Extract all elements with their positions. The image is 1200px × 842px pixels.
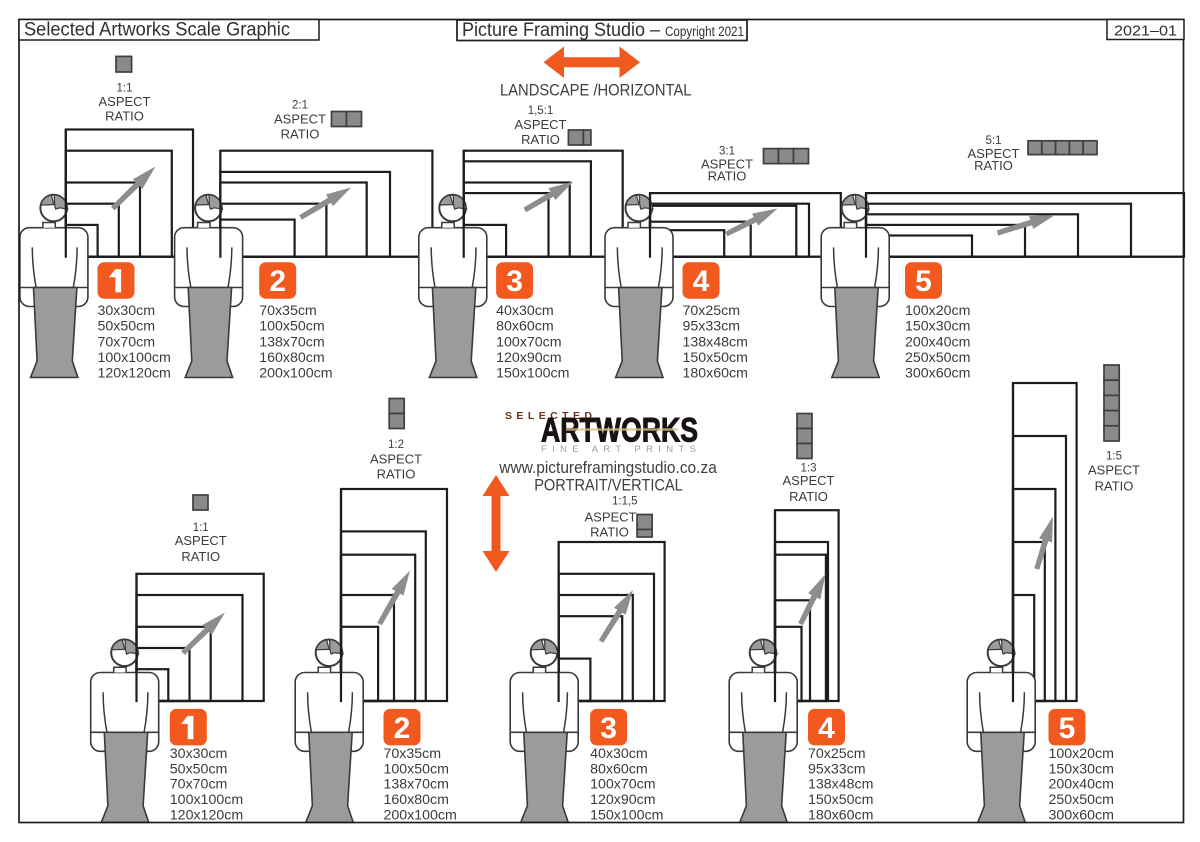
svg-text:70x35cm: 70x35cm bbox=[384, 746, 442, 762]
svg-text:5: 5 bbox=[915, 265, 932, 298]
svg-text:70x70cm: 70x70cm bbox=[98, 334, 156, 350]
svg-text:40x30cm: 40x30cm bbox=[496, 303, 554, 319]
svg-text:150x50cm: 150x50cm bbox=[683, 350, 748, 366]
svg-text:70x70cm: 70x70cm bbox=[170, 777, 228, 793]
svg-text:FINE ART PRINTS: FINE ART PRINTS bbox=[541, 444, 696, 455]
svg-text:300x60cm: 300x60cm bbox=[905, 366, 970, 382]
svg-text:ASPECT: ASPECT bbox=[175, 533, 227, 548]
svg-text:138x48cm: 138x48cm bbox=[683, 334, 748, 350]
svg-text:ASPECT: ASPECT bbox=[98, 94, 150, 109]
svg-text:RATIO: RATIO bbox=[181, 549, 220, 564]
svg-text:1:1: 1:1 bbox=[193, 522, 209, 534]
svg-text:95x33cm: 95x33cm bbox=[808, 761, 866, 777]
svg-text:100x100cm: 100x100cm bbox=[170, 792, 243, 808]
svg-text:40x30cm: 40x30cm bbox=[590, 746, 648, 762]
svg-text:95x33cm: 95x33cm bbox=[683, 319, 741, 335]
svg-text:1:2: 1:2 bbox=[388, 439, 404, 451]
svg-text:1:5: 1:5 bbox=[1106, 451, 1122, 463]
svg-text:ASPECT: ASPECT bbox=[274, 112, 326, 127]
svg-text:RATIO: RATIO bbox=[521, 132, 560, 147]
svg-text:ASPECT: ASPECT bbox=[584, 510, 636, 525]
svg-text:30x30cm: 30x30cm bbox=[98, 303, 156, 319]
svg-text:50x50cm: 50x50cm bbox=[98, 319, 156, 335]
svg-text:2: 2 bbox=[394, 712, 411, 745]
svg-text:100x50cm: 100x50cm bbox=[259, 319, 324, 335]
svg-text:300x60cm: 300x60cm bbox=[1049, 808, 1114, 824]
svg-text:100x100cm: 100x100cm bbox=[98, 350, 171, 366]
svg-text:160x80cm: 160x80cm bbox=[384, 792, 449, 808]
svg-text:RATIO: RATIO bbox=[105, 109, 144, 124]
svg-text:ASPECT: ASPECT bbox=[782, 473, 834, 488]
svg-text:70x35cm: 70x35cm bbox=[259, 303, 317, 319]
svg-text:150x100cm: 150x100cm bbox=[590, 808, 663, 824]
svg-text:150x30cm: 150x30cm bbox=[1049, 761, 1114, 777]
svg-text:200x100cm: 200x100cm bbox=[384, 808, 457, 824]
svg-text:120x120cm: 120x120cm bbox=[98, 366, 171, 382]
svg-text:1:1,5: 1:1,5 bbox=[612, 496, 638, 508]
svg-text:ASPECT: ASPECT bbox=[514, 117, 566, 132]
svg-text:PORTRAIT/VERTICAL: PORTRAIT/VERTICAL bbox=[534, 476, 683, 494]
svg-text:4: 4 bbox=[693, 265, 710, 298]
svg-text:200x100cm: 200x100cm bbox=[259, 366, 332, 382]
svg-text:120x120cm: 120x120cm bbox=[170, 808, 243, 824]
svg-text:RATIO: RATIO bbox=[974, 158, 1013, 173]
svg-text:138x48cm: 138x48cm bbox=[808, 777, 873, 793]
svg-text:250x50cm: 250x50cm bbox=[905, 350, 970, 366]
svg-text:RATIO: RATIO bbox=[789, 489, 828, 504]
svg-text:LANDSCAPE /HORIZONTAL: LANDSCAPE /HORIZONTAL bbox=[500, 81, 692, 100]
svg-text:100x20cm: 100x20cm bbox=[1049, 746, 1114, 762]
svg-text:RATIO: RATIO bbox=[708, 168, 747, 183]
svg-text:Picture Framing Studio –Copyri: Picture Framing Studio –Copyright 2021 bbox=[462, 20, 744, 41]
svg-text:120x90cm: 120x90cm bbox=[590, 792, 655, 808]
svg-text:2021–01: 2021–01 bbox=[1114, 22, 1177, 39]
svg-text:100x20cm: 100x20cm bbox=[905, 303, 970, 319]
svg-text:Selected Artworks Scale Graphi: Selected Artworks Scale Graphic bbox=[24, 20, 290, 41]
svg-text:RATIO: RATIO bbox=[281, 127, 320, 142]
svg-text:50x50cm: 50x50cm bbox=[170, 761, 228, 777]
svg-text:www.pictureframingstudio.co.za: www.pictureframingstudio.co.za bbox=[498, 459, 717, 477]
svg-text:80x60cm: 80x60cm bbox=[590, 761, 648, 777]
svg-text:2:1: 2:1 bbox=[292, 100, 308, 112]
svg-text:5: 5 bbox=[1059, 712, 1076, 745]
svg-text:200x40cm: 200x40cm bbox=[905, 334, 970, 350]
svg-text:1,5:1: 1,5:1 bbox=[528, 105, 554, 117]
svg-text:RATIO: RATIO bbox=[590, 524, 629, 539]
svg-text:70x25cm: 70x25cm bbox=[683, 303, 741, 319]
svg-text:100x70cm: 100x70cm bbox=[496, 334, 561, 350]
svg-text:150x100cm: 150x100cm bbox=[496, 366, 569, 382]
svg-text:70x25cm: 70x25cm bbox=[808, 746, 866, 762]
svg-text:4: 4 bbox=[818, 712, 835, 745]
svg-text:3: 3 bbox=[600, 712, 617, 745]
svg-text:180x60cm: 180x60cm bbox=[808, 808, 873, 824]
svg-text:ASPECT: ASPECT bbox=[1088, 463, 1140, 478]
svg-text:2: 2 bbox=[269, 265, 286, 298]
svg-text:3: 3 bbox=[506, 265, 523, 298]
svg-text:ASPECT: ASPECT bbox=[370, 451, 422, 466]
svg-text:150x50cm: 150x50cm bbox=[808, 792, 873, 808]
svg-text:RATIO: RATIO bbox=[1095, 479, 1134, 494]
svg-text:100x70cm: 100x70cm bbox=[590, 777, 655, 793]
svg-text:1:1: 1:1 bbox=[117, 83, 133, 95]
svg-text:200x40cm: 200x40cm bbox=[1049, 777, 1114, 793]
svg-text:160x80cm: 160x80cm bbox=[259, 350, 324, 366]
svg-text:180x60cm: 180x60cm bbox=[683, 366, 748, 382]
svg-text:120x90cm: 120x90cm bbox=[496, 350, 561, 366]
svg-text:250x50cm: 250x50cm bbox=[1049, 792, 1114, 808]
svg-text:30x30cm: 30x30cm bbox=[170, 746, 228, 762]
svg-text:138x70cm: 138x70cm bbox=[384, 777, 449, 793]
svg-text:138x70cm: 138x70cm bbox=[259, 334, 324, 350]
svg-text:100x50cm: 100x50cm bbox=[384, 761, 449, 777]
svg-text:RATIO: RATIO bbox=[377, 466, 416, 481]
svg-text:150x30cm: 150x30cm bbox=[905, 319, 970, 335]
svg-text:80x60cm: 80x60cm bbox=[496, 319, 554, 335]
